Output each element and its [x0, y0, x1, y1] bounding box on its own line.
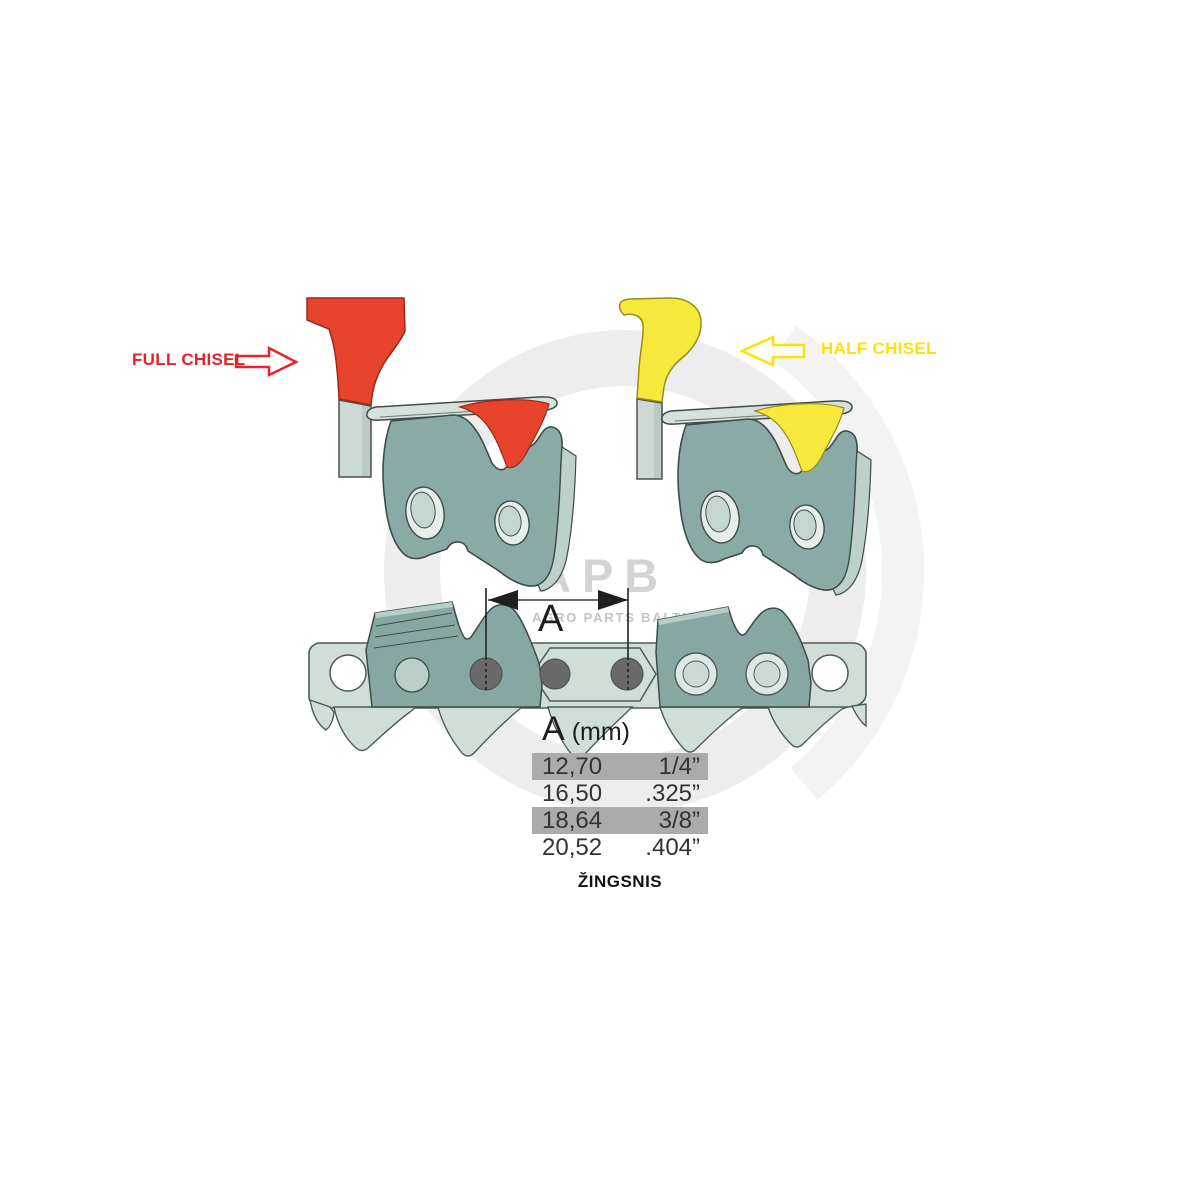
cutter-body — [656, 607, 811, 707]
chainsaw-chain-diagram: APB AGRO PARTS BALTIJA — [0, 0, 1188, 1188]
rivet — [470, 658, 502, 690]
strap-hole — [330, 655, 366, 691]
full-chisel-blade-shape — [307, 298, 405, 405]
rivet — [540, 659, 570, 689]
chain-strip — [309, 602, 866, 758]
chain-cutter-full-chisel — [366, 602, 542, 707]
drive-link-fin — [438, 707, 522, 756]
half-chisel-link — [662, 401, 871, 595]
drive-link-fin — [548, 707, 632, 758]
half-chisel-blade-shape — [620, 298, 702, 402]
drive-link-fin — [768, 707, 848, 747]
cutter-body — [366, 602, 542, 707]
drive-links — [310, 700, 866, 758]
drive-link-fin — [852, 704, 866, 726]
full-chisel-link — [367, 397, 576, 591]
dimension-arrowhead-right — [598, 590, 628, 610]
hollow-rivet-inner — [683, 661, 709, 687]
strap-hole — [812, 655, 848, 691]
rivet — [611, 658, 643, 690]
chain-cutter-half-chisel — [656, 607, 811, 707]
illustration-layer — [0, 0, 1188, 1188]
drive-link-fin — [334, 707, 416, 751]
drive-link-fin — [660, 707, 744, 752]
full-chisel-arrow-icon — [236, 348, 296, 375]
half-chisel-arrow-icon — [742, 337, 804, 365]
half-chisel-shank-shade — [654, 402, 662, 479]
hollow-rivet-inner — [754, 661, 780, 687]
cutter-hole — [395, 658, 429, 692]
